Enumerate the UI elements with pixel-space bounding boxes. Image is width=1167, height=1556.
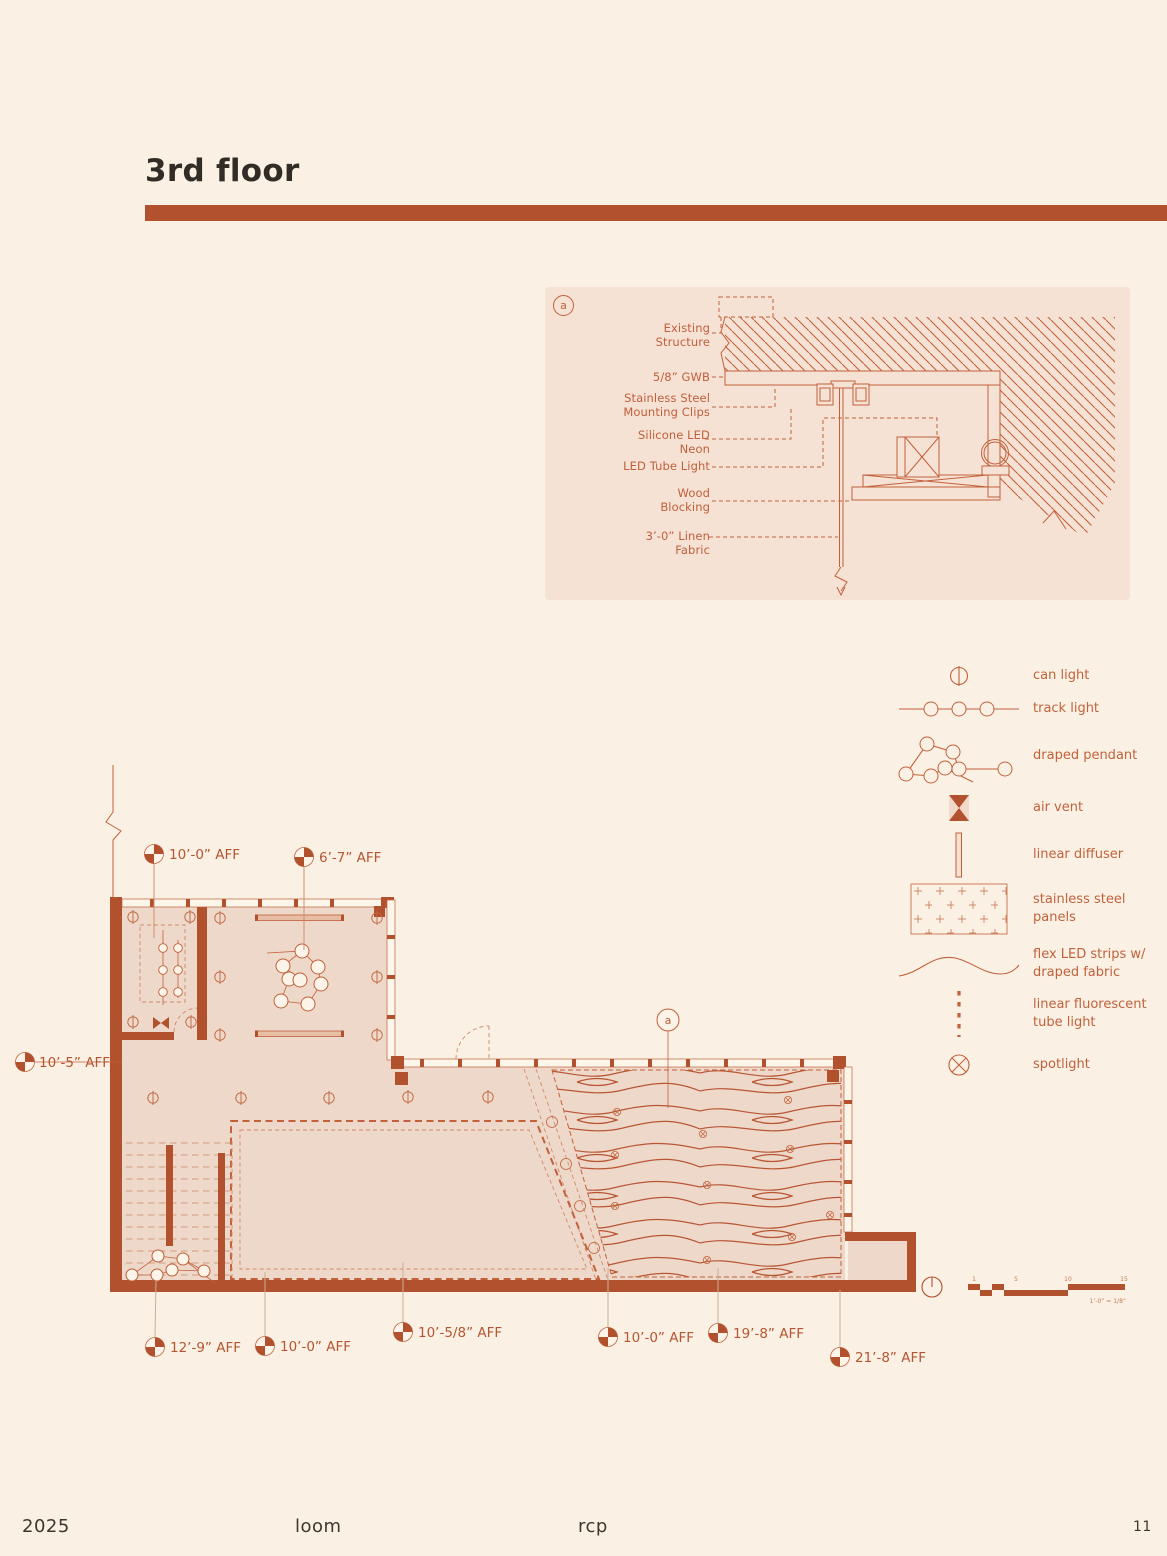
can-light-icon	[893, 662, 1025, 690]
scale-tick: 5	[1014, 1276, 1018, 1283]
footer-year: 2025	[22, 1516, 70, 1537]
ceiling-detail-panel: a Existing Structure 5/8” GWB Stainless …	[545, 287, 1130, 600]
aff-label: 19’-8” AFF	[733, 1326, 804, 1342]
linen-fabric-drop	[835, 388, 847, 595]
elevation-marker-icon	[831, 1348, 850, 1367]
footer-project: loom	[295, 1516, 342, 1537]
aff-label: 10’-0” AFF	[280, 1339, 351, 1355]
elevation-marker-icon	[146, 1338, 165, 1357]
detail-callout-letter: a	[560, 299, 567, 312]
aff-label: 10’-0” AFF	[623, 1330, 694, 1346]
aff-label: 10’-0” AFF	[169, 847, 240, 863]
title-rule	[145, 205, 1167, 221]
detail-callout-bubble: a	[553, 295, 574, 316]
scale-tick: 15	[1120, 1276, 1128, 1283]
elevation-marker-icon	[709, 1324, 728, 1343]
scale-note: 1’-0” = 1/8”	[1090, 1298, 1126, 1305]
detail-label-linen-fabric: 3’-0” Linen Fabric	[626, 529, 710, 557]
elevation-marker-icon	[256, 1337, 275, 1356]
legend-item-can-light: can light	[893, 660, 1167, 692]
aff-label: 10’-5/8” AFF	[418, 1325, 502, 1341]
elevation-marker-icon	[16, 1053, 35, 1072]
existing-structure-hatch	[721, 317, 1115, 537]
detail-label-mounting-clips: Stainless Steel Mounting Clips	[598, 391, 710, 419]
wood-blocking-box	[897, 437, 939, 477]
elevation-marker-icon	[599, 1328, 618, 1347]
aff-label: 12’-9” AFF	[170, 1340, 241, 1356]
floor-plan: a 1 5 10 15 1’-0” = 1/8”	[0, 752, 1167, 1402]
track-light-icon	[893, 696, 1025, 722]
detail-label-led-tube-light: LED Tube Light	[590, 459, 710, 473]
scale-tick: 1	[972, 1276, 976, 1283]
detail-label-silicone-led-neon: Silicone LED Neon	[622, 428, 710, 456]
footer-sheet: rcp	[578, 1516, 608, 1537]
page-title: 3rd floor	[145, 153, 300, 189]
aff-label: 21’-8” AFF	[855, 1350, 926, 1366]
door-swing-arc	[456, 1026, 489, 1059]
aff-label: 10’-5” AFF	[39, 1055, 110, 1071]
break-line	[106, 765, 121, 898]
elevation-marker-icon	[295, 848, 314, 867]
elevation-marker-icon	[145, 845, 164, 864]
aff-label: 6’-7” AFF	[319, 850, 381, 866]
scale-tick: 10	[1064, 1276, 1072, 1283]
detail-label-existing-structure: Existing Structure	[638, 321, 710, 349]
legend-item-track-light: track light	[893, 694, 1167, 724]
footer-page-number: 11	[1133, 1519, 1152, 1535]
plan-callout-letter: a	[665, 1014, 672, 1027]
north-indicator-icon	[922, 1277, 942, 1297]
elevation-marker-icon	[394, 1323, 413, 1342]
detail-label-wood-blocking: Wood Blocking	[648, 486, 710, 514]
scale-bar: 1 5 10 15 1’-0” = 1/8”	[968, 1276, 1128, 1305]
detail-label-gwb: 5/8” GWB	[620, 370, 710, 384]
